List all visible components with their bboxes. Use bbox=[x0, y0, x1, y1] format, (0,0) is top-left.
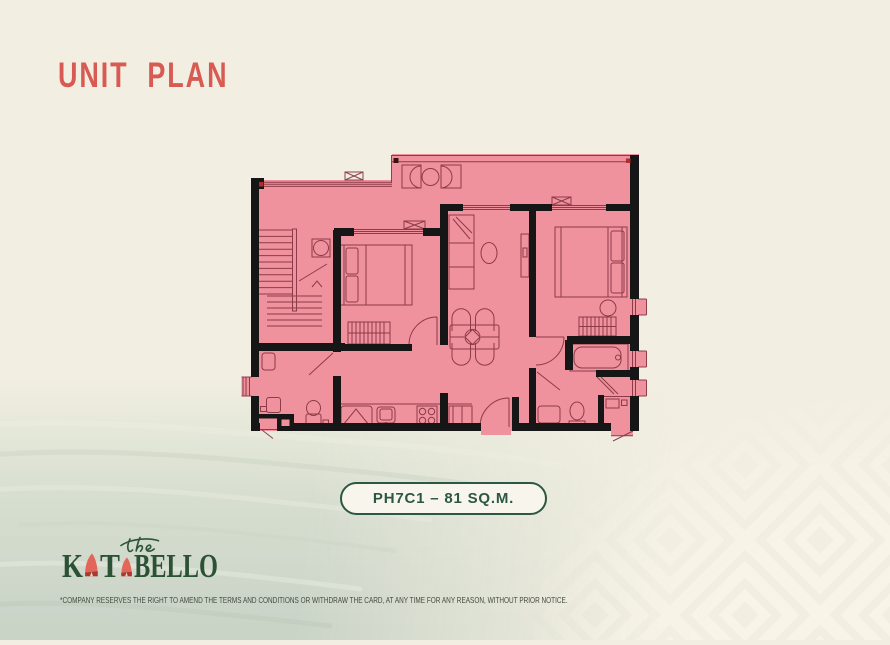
svg-text:K: K bbox=[62, 548, 83, 585]
svg-text:BELLO: BELLO bbox=[134, 548, 218, 585]
svg-text:T: T bbox=[100, 548, 120, 585]
